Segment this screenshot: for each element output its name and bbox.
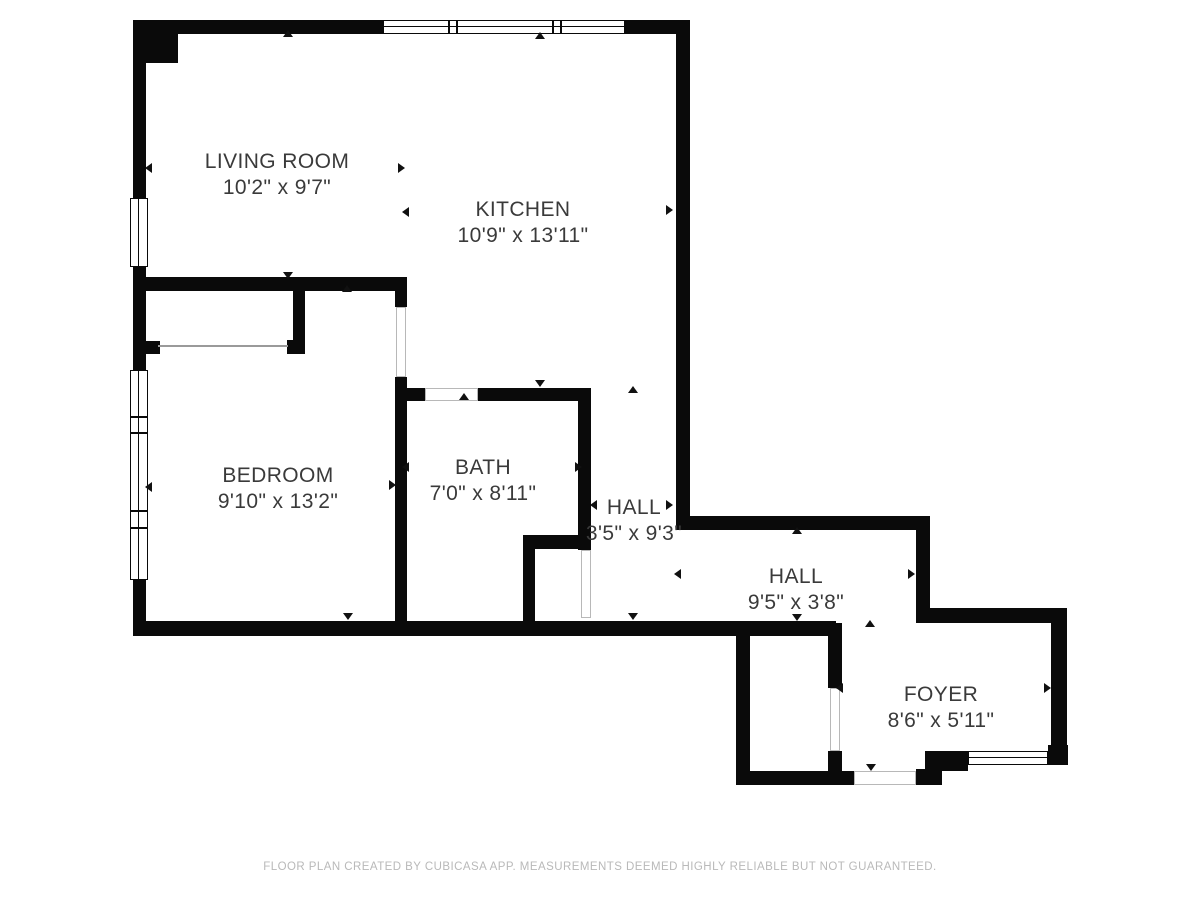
door-entry — [854, 771, 916, 785]
door-arrow-icon — [402, 462, 409, 472]
wall-kitchen-right — [676, 20, 690, 530]
wall-closet-divider-foot — [287, 340, 305, 354]
door-arrow-icon — [389, 480, 396, 490]
wall-bath-top-stub — [407, 388, 425, 401]
room-label-bath: BATH 7'0" x 8'11" — [430, 455, 537, 507]
wall-hall-right — [916, 516, 930, 623]
door-arrow-icon — [398, 163, 405, 173]
door-arrow-icon — [283, 272, 293, 279]
wall-closet-left — [736, 623, 750, 785]
door-arrow-icon — [283, 30, 293, 37]
room-label-hall-small: HALL 3'5" x 9'3" — [586, 495, 682, 547]
room-name: HALL — [748, 564, 844, 590]
door-arrow-icon — [908, 569, 915, 579]
wall-foyer-right — [1051, 608, 1067, 758]
door-arrow-icon — [343, 613, 353, 620]
room-name: FOYER — [888, 682, 995, 708]
room-dims: 3'5" x 9'3" — [586, 521, 682, 547]
wall-nook-left — [523, 535, 535, 636]
wall-bath-top — [478, 388, 590, 401]
door-arrow-icon — [145, 163, 152, 173]
door-arrow-icon — [666, 205, 673, 215]
room-dims: 8'6" x 5'11" — [888, 708, 995, 734]
door-arrow-icon — [575, 462, 582, 472]
room-dims: 9'10" x 13'2" — [218, 489, 338, 515]
room-label-kitchen: KITCHEN 10'9" x 13'11" — [458, 197, 589, 249]
wall-foyer-bottom-step — [925, 751, 968, 771]
wall-bedroom-right-lower — [395, 377, 407, 636]
window-living-room — [130, 198, 148, 267]
door-arrow-icon — [402, 207, 409, 217]
wall-bottom-main — [133, 621, 836, 636]
wall-bedroom-right-upper — [395, 277, 407, 307]
closet-front-line — [158, 345, 288, 347]
window-kitchen-top — [383, 20, 625, 34]
room-name: HALL — [586, 495, 682, 521]
door-arrow-icon — [628, 613, 638, 620]
floor-plan: LIVING ROOM 10'2" x 9'7" KITCHEN 10'9" x… — [0, 0, 1200, 900]
wall-closet-right-stub — [828, 751, 842, 771]
door-arrow-icon — [865, 620, 875, 627]
door-entry-closet — [830, 688, 840, 751]
room-dims: 10'2" x 9'7" — [205, 175, 349, 201]
room-label-bedroom: BEDROOM 9'10" x 13'2" — [218, 463, 338, 515]
door-arrow-icon — [1044, 683, 1051, 693]
door-arrow-icon — [792, 527, 802, 534]
wall-livingroom-bedroom — [133, 277, 407, 291]
footer-disclaimer: FLOOR PLAN CREATED BY CUBICASA APP. MEAS… — [263, 861, 936, 873]
room-name: KITCHEN — [458, 197, 589, 223]
room-name: BEDROOM — [218, 463, 338, 489]
door-arrow-icon — [836, 683, 843, 693]
room-label-living-room: LIVING ROOM 10'2" x 9'7" — [205, 149, 349, 201]
door-bath — [425, 388, 478, 401]
wall-entry-bottom — [736, 771, 854, 785]
room-dims: 7'0" x 8'11" — [430, 481, 537, 507]
door-arrow-icon — [866, 764, 876, 771]
wall-hall-top — [676, 516, 930, 530]
wall-closet-stub-left — [146, 341, 160, 354]
wall-foyer-bottom-block — [916, 769, 942, 785]
door-arrow-icon — [342, 285, 352, 292]
wall-closet-right-upper — [828, 623, 842, 688]
room-name: BATH — [430, 455, 537, 481]
room-label-hall-large: HALL 9'5" x 3'8" — [748, 564, 844, 616]
door-bedroom — [396, 307, 406, 377]
wall-left-upper — [133, 20, 146, 200]
door-arrow-icon — [674, 569, 681, 579]
door-arrow-icon — [535, 32, 545, 39]
door-arrow-icon — [145, 482, 152, 492]
room-dims: 9'5" x 3'8" — [748, 590, 844, 616]
room-dims: 10'9" x 13'11" — [458, 223, 589, 249]
wall-top-left — [133, 20, 383, 34]
door-arrow-icon — [535, 380, 545, 387]
window-foyer — [968, 751, 1048, 765]
room-label-foyer: FOYER 8'6" x 5'11" — [888, 682, 995, 734]
door-hall-nook — [581, 550, 591, 618]
wall-foyer-right-corner — [1048, 745, 1068, 765]
room-name: LIVING ROOM — [205, 149, 349, 175]
wall-foyer-top — [916, 608, 1066, 623]
door-arrow-icon — [459, 393, 469, 400]
wall-left-lower — [133, 578, 146, 636]
door-arrow-icon — [628, 386, 638, 393]
window-bedroom — [130, 370, 148, 580]
